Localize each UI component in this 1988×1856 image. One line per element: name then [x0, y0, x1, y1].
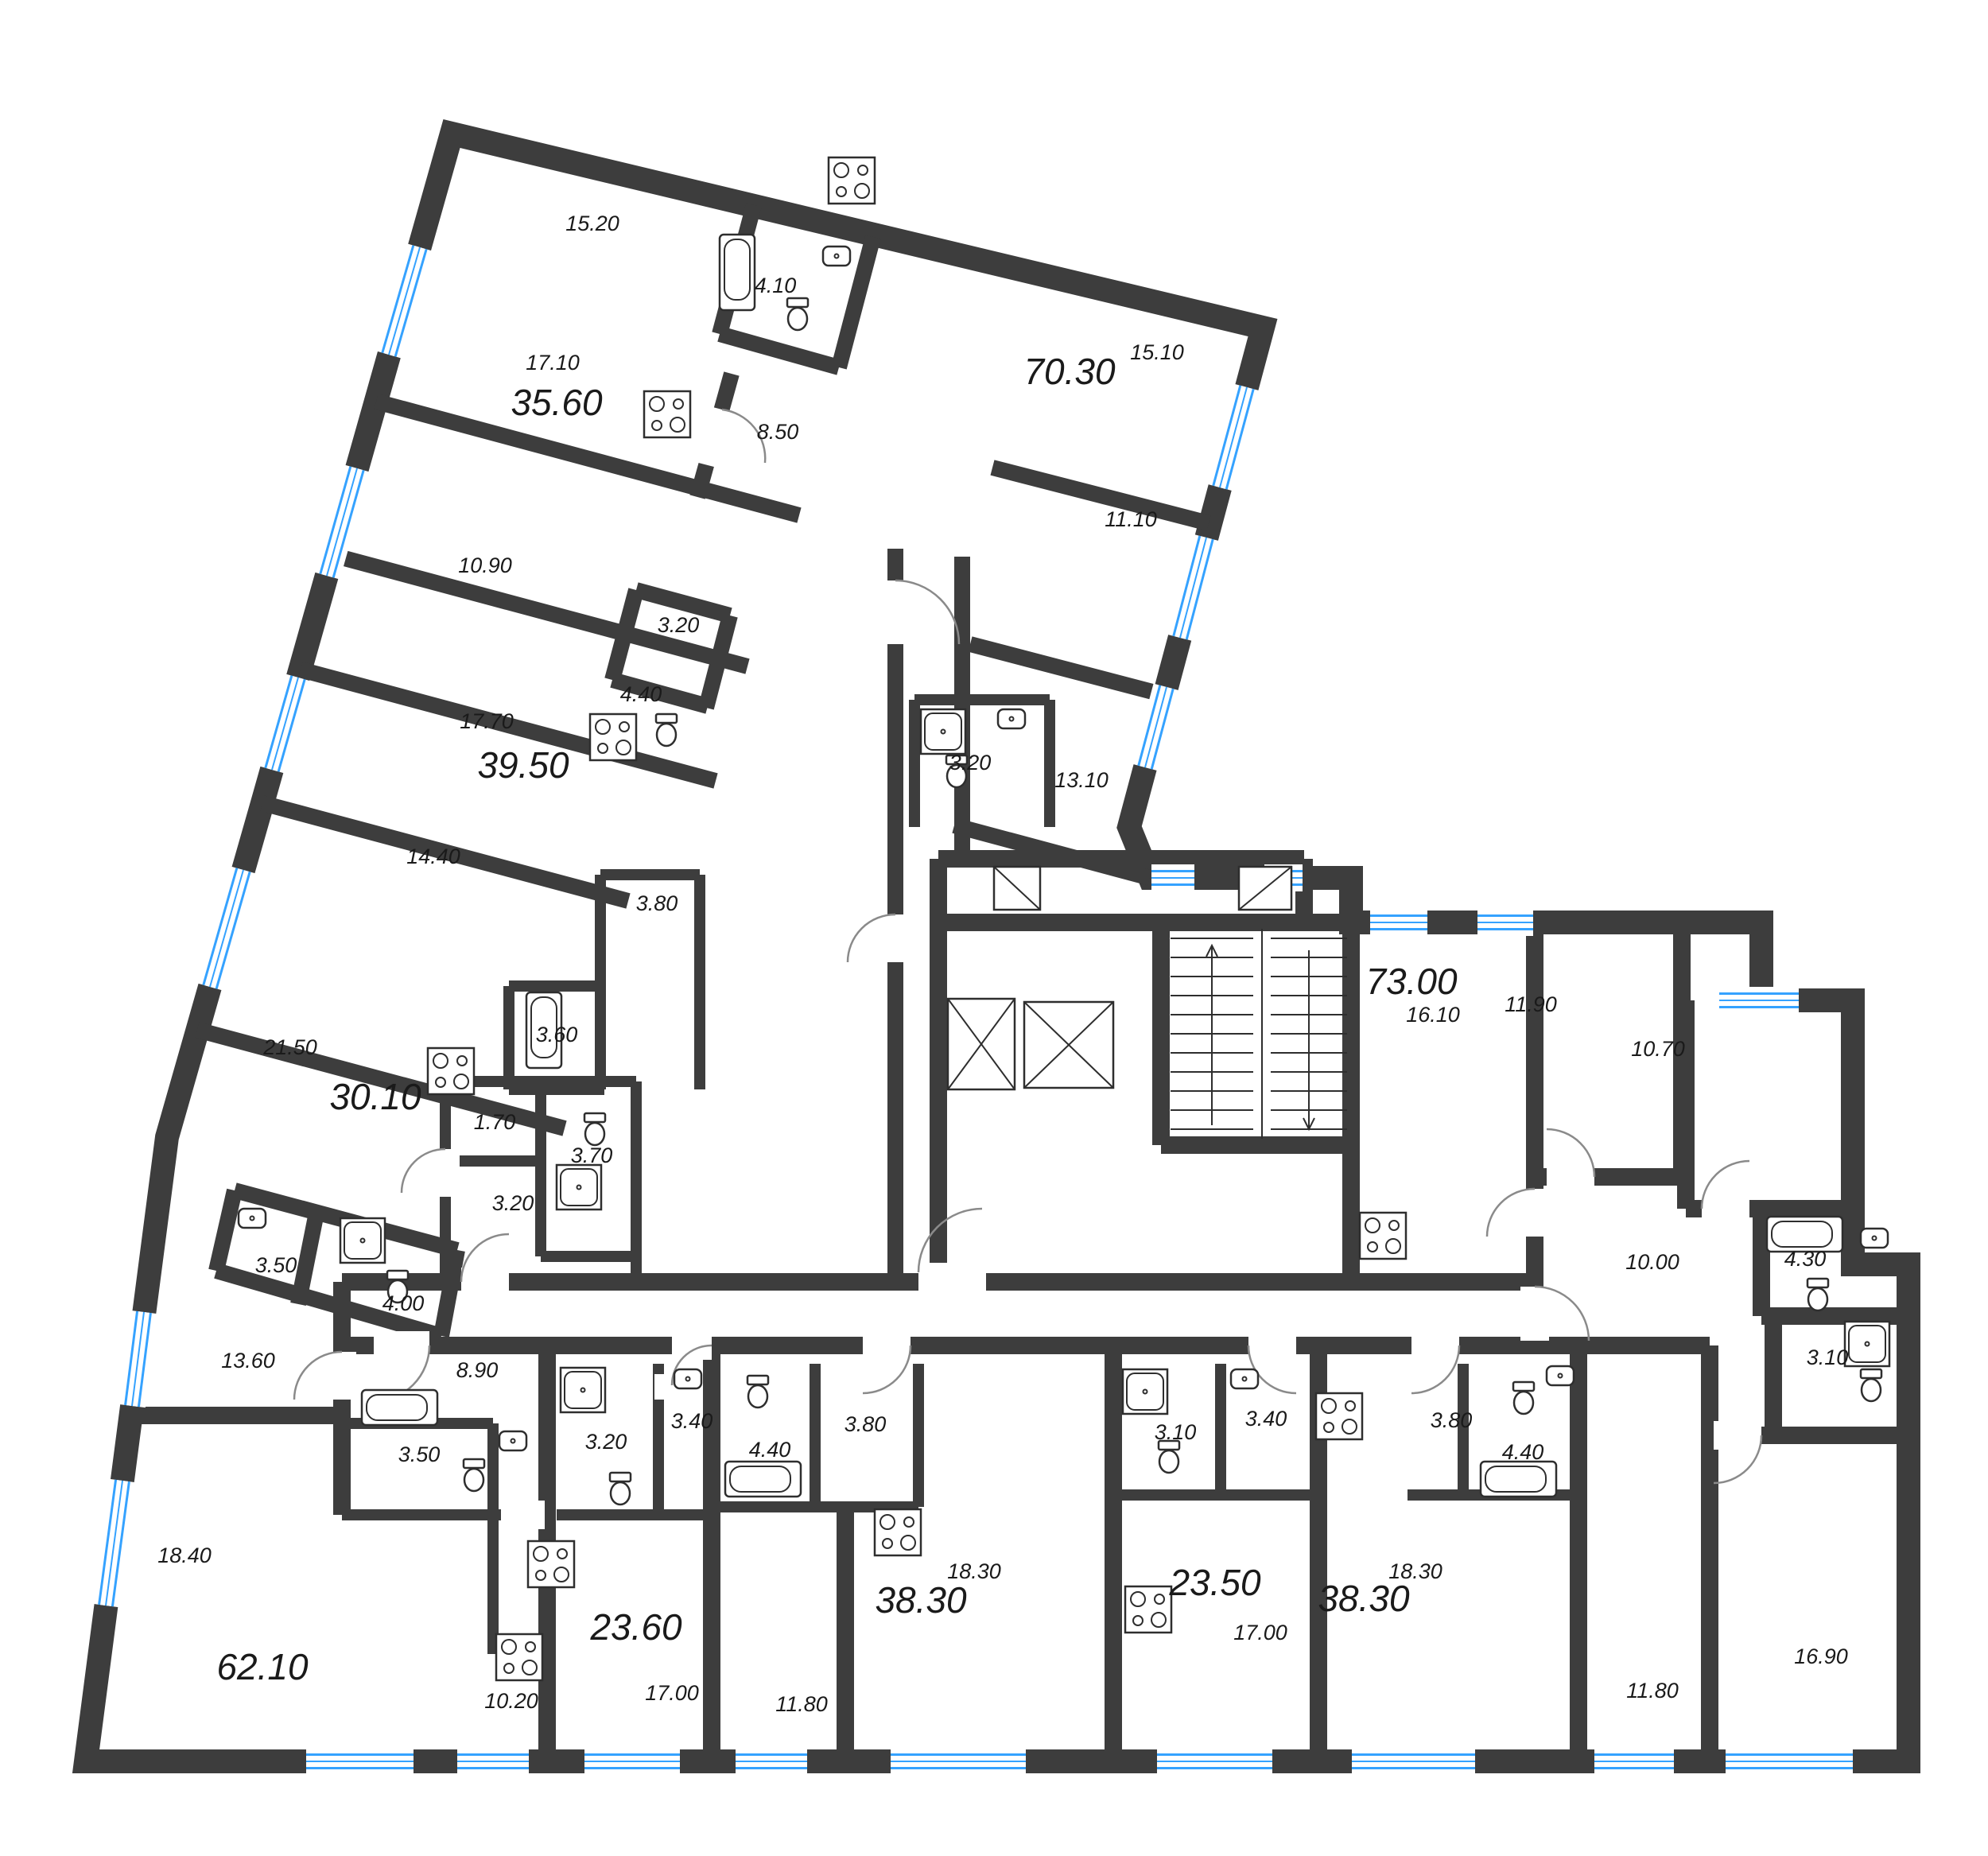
apartment-total-label: 39.50: [477, 744, 569, 786]
sink-icon: [1231, 1369, 1258, 1388]
room-area-label: 10.00: [1625, 1250, 1679, 1274]
room-area-label: 16.90: [1794, 1644, 1848, 1668]
stove-icon: [428, 1048, 474, 1094]
apartment-total-label: 38.30: [1318, 1578, 1410, 1619]
room-area-label: 18.30: [947, 1559, 1001, 1583]
room-area-label: 3.40: [1245, 1407, 1287, 1431]
apartment-total-label: 62.10: [216, 1646, 309, 1687]
apartment-total-label: 30.10: [329, 1076, 421, 1117]
stove-icon: [496, 1634, 542, 1680]
room-area-label: 11.90: [1505, 992, 1557, 1016]
bathtub-icon: [725, 1462, 801, 1497]
stove-icon: [590, 714, 636, 760]
room-area-label: 3.50: [255, 1253, 297, 1277]
room-area-label: 17.00: [1233, 1621, 1287, 1644]
room-area-label: 13.60: [221, 1349, 275, 1373]
room-area-label: 18.30: [1388, 1559, 1442, 1583]
stove-icon: [528, 1541, 574, 1587]
room-area-label: 18.40: [157, 1543, 212, 1567]
toilet-icon: [584, 1113, 605, 1145]
corridor-walls: [342, 1282, 1710, 1345]
sink-icon: [823, 247, 850, 266]
room-area-label: 10.90: [458, 553, 512, 577]
apartment-total-label: 23.60: [589, 1606, 682, 1648]
stove-icon: [1316, 1393, 1362, 1439]
room-area-label: 14.40: [406, 845, 460, 868]
room-area-label: 3.60: [536, 1023, 578, 1046]
apartment-total-label: 73.00: [1365, 961, 1458, 1002]
toilet-icon: [787, 298, 808, 330]
room-area-label: 1.70: [474, 1110, 516, 1134]
shower-icon: [1845, 1322, 1889, 1366]
toilet-icon: [464, 1459, 484, 1491]
bathtub-icon: [720, 235, 755, 310]
shower-icon: [921, 709, 965, 754]
shower-icon: [561, 1368, 605, 1412]
room-area-label: 3.50: [398, 1442, 441, 1466]
room-area-label: 3.80: [845, 1412, 887, 1436]
stove-icon: [1125, 1586, 1171, 1633]
shower-icon: [340, 1218, 385, 1263]
room-area-label: 3.10: [1807, 1345, 1849, 1369]
room-area-label: 11.80: [775, 1692, 828, 1716]
room-area-label: 10.20: [484, 1689, 538, 1713]
room-area-label: 17.70: [460, 709, 514, 733]
sink-icon: [998, 709, 1025, 728]
room-area-label: 8.90: [456, 1358, 499, 1382]
room-area-label: 3.70: [571, 1143, 613, 1167]
floor-plan-svg: 35.6017.1010.903.204.4070.3015.204.108.5…: [0, 0, 1988, 1856]
stairs-icon: [1171, 929, 1347, 1139]
room-area-label: 16.10: [1406, 1003, 1460, 1027]
room-area-label: 3.80: [1431, 1408, 1473, 1432]
elevator-icon: [1024, 1002, 1113, 1088]
bathtub-icon: [1481, 1462, 1556, 1497]
room-area-label: 15.10: [1130, 340, 1184, 364]
toilet-icon: [1513, 1382, 1534, 1414]
stove-icon: [875, 1509, 921, 1555]
sink-icon: [1547, 1366, 1574, 1385]
apartment-total-label: 38.30: [875, 1579, 967, 1621]
room-area-label: 4.00: [382, 1291, 425, 1315]
room-area-label: 10.70: [1631, 1037, 1685, 1061]
room-area-label: 4.40: [749, 1438, 791, 1462]
floor-plan-page: 35.6017.1010.903.204.4070.3015.204.108.5…: [0, 0, 1988, 1856]
room-area-label: 3.40: [671, 1409, 713, 1433]
elevator-icon: [948, 999, 1015, 1089]
walls: [86, 134, 1908, 1761]
toilet-icon: [747, 1376, 768, 1408]
toilet-icon: [656, 714, 677, 746]
shower-icon: [1123, 1369, 1167, 1414]
sink-icon: [1861, 1229, 1888, 1248]
toilet-icon: [1159, 1441, 1179, 1473]
room-area-label: 11.10: [1105, 507, 1157, 531]
toilet-icon: [1807, 1279, 1828, 1310]
toilet-icon: [610, 1473, 631, 1505]
toilet-icon: [1861, 1369, 1881, 1401]
room-area-label: 17.00: [645, 1681, 699, 1705]
room-area-label: 3.80: [636, 891, 678, 915]
sink-icon: [674, 1369, 701, 1388]
shower-icon: [557, 1165, 601, 1210]
stove-icon: [644, 391, 690, 437]
room-area-label: 8.50: [757, 420, 799, 444]
area-labels: 35.6017.1010.903.204.4070.3015.204.108.5…: [157, 212, 1848, 1716]
room-area-label: 21.50: [262, 1035, 317, 1059]
stove-icon: [1360, 1213, 1406, 1259]
room-area-label: 4.30: [1784, 1247, 1827, 1271]
stove-icon: [829, 157, 875, 204]
apartment-total-label: 23.50: [1168, 1562, 1261, 1603]
sink-icon: [239, 1209, 266, 1228]
room-area-label: 3.10: [1155, 1420, 1197, 1444]
room-area-label: 4.40: [1502, 1440, 1544, 1464]
room-area-label: 17.10: [526, 351, 580, 375]
bathtub-icon: [362, 1390, 437, 1425]
room-area-label: 3.20: [949, 751, 992, 775]
room-area-label: 3.20: [492, 1191, 534, 1215]
core: [948, 867, 1347, 1139]
apartment-total-label: 70.30: [1023, 351, 1116, 392]
sink-icon: [499, 1431, 526, 1450]
room-area-label: 3.20: [658, 613, 700, 637]
room-area-label: 15.20: [565, 212, 619, 235]
apartment-total-label: 35.60: [511, 382, 603, 423]
room-area-label: 11.80: [1626, 1679, 1679, 1703]
room-area-label: 13.10: [1054, 768, 1109, 792]
room-area-label: 3.20: [585, 1430, 627, 1454]
room-area-label: 4.10: [755, 274, 797, 297]
room-area-label: 4.40: [620, 682, 662, 706]
